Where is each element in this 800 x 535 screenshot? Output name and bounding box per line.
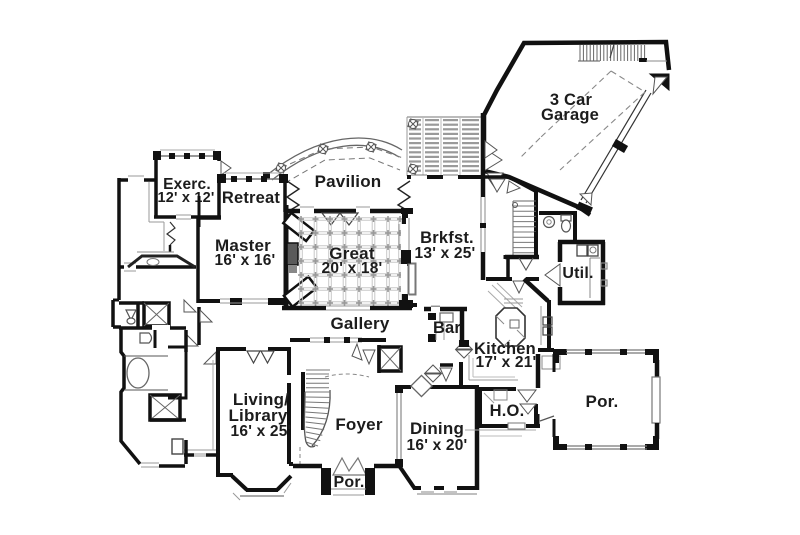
svg-text:Retreat: Retreat <box>222 189 281 207</box>
svg-text:17' x 21': 17' x 21' <box>476 354 537 371</box>
svg-text:16' x 25': 16' x 25' <box>231 423 292 440</box>
svg-text:Pavilion: Pavilion <box>315 172 382 191</box>
svg-text:20' x 18': 20' x 18' <box>322 260 383 277</box>
svg-text:Por.: Por. <box>333 474 364 491</box>
svg-text:H.O.: H.O. <box>490 402 525 420</box>
svg-text:Garage: Garage <box>541 106 599 124</box>
svg-text:Dining: Dining <box>410 419 464 438</box>
svg-text:Util.: Util. <box>562 265 593 282</box>
svg-text:16' x 20': 16' x 20' <box>407 437 468 454</box>
svg-text:Bar: Bar <box>433 319 461 337</box>
svg-text:Por.: Por. <box>586 392 619 411</box>
svg-text:16' x 16': 16' x 16' <box>215 252 276 269</box>
svg-text:Foyer: Foyer <box>335 415 382 434</box>
svg-text:12' x 12': 12' x 12' <box>157 190 214 206</box>
svg-text:13' x 25': 13' x 25' <box>415 245 476 262</box>
svg-text:Gallery: Gallery <box>330 314 389 333</box>
